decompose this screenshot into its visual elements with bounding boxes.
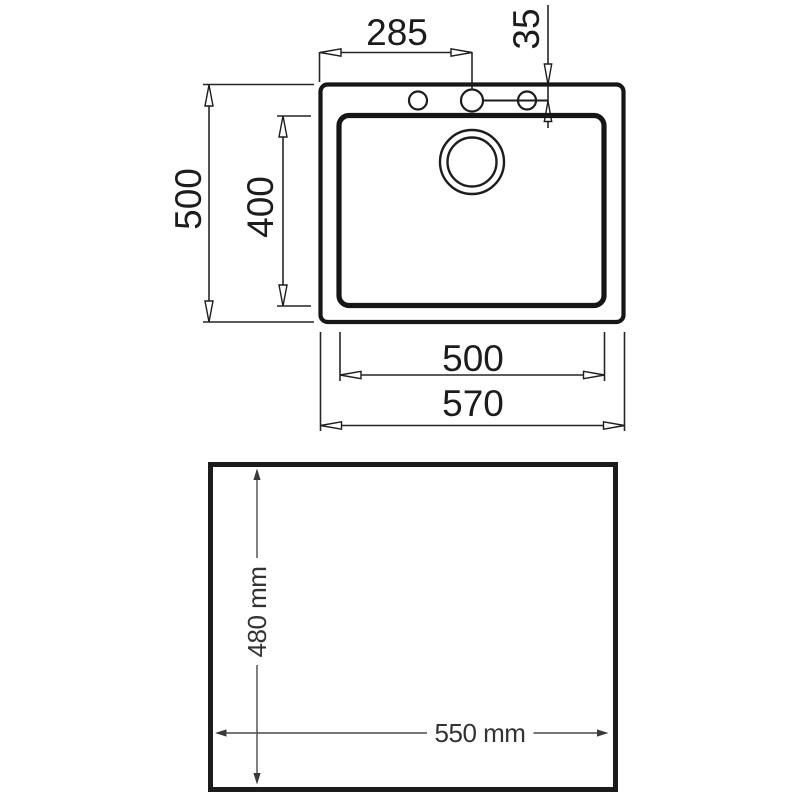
dim-bowl-depth-label: 400 [240,176,281,238]
dim-cutout-depth: 480 mm [242,469,272,785]
dim-bowl-width-label: 500 [442,338,504,379]
arrowhead-up-icon [279,116,287,137]
arrowhead-left-icon [321,422,342,429]
arrowhead-right-icon [604,422,625,429]
dim-cutout-width-label: 550 mm [435,718,526,748]
dim-bowl-width: 500 [340,332,605,381]
dim-overall-width-label: 570 [442,383,504,424]
faucet-hole-center [461,90,483,112]
drain-inner-circle [448,138,497,187]
sink-top-view: 500 400 285 [168,5,625,431]
dim-overall-depth-label: 500 [168,168,209,230]
arrowhead-left-icon [340,371,361,378]
sink-bowl [339,116,604,306]
dim-cutout-depth-label: 480 mm [242,567,272,658]
drain-outer-circle [440,130,504,194]
arrowhead-down-icon [253,773,260,785]
dim-faucet-offset: 285 [320,12,473,93]
arrowhead-down-icon [279,285,287,306]
technical-drawing-svg: 500 400 285 [0,0,800,800]
arrowhead-up-icon [544,101,551,122]
cutout-view: 480 mm 550 mm [211,465,616,790]
arrowhead-down-icon [544,64,551,85]
dim-faucet-offset-label: 285 [366,12,428,53]
arrowhead-right-icon [584,371,605,378]
sink-dimension-drawing: 500 400 285 [0,0,800,800]
dim-cutout-width: 550 mm [215,718,609,748]
arrowhead-down-icon [205,301,213,322]
arrowhead-left-icon [215,729,227,736]
dim-holes-from-top-label: 35 [506,8,547,49]
arrowhead-up-icon [205,85,213,106]
faucet-hole-left [409,92,427,110]
arrowhead-left-icon [320,49,341,56]
arrowhead-right-icon [451,49,472,56]
arrowhead-up-icon [253,469,260,481]
dim-bowl-depth: 400 [240,116,311,306]
sink-outer-edge [321,85,624,323]
arrowhead-right-icon [597,729,609,736]
